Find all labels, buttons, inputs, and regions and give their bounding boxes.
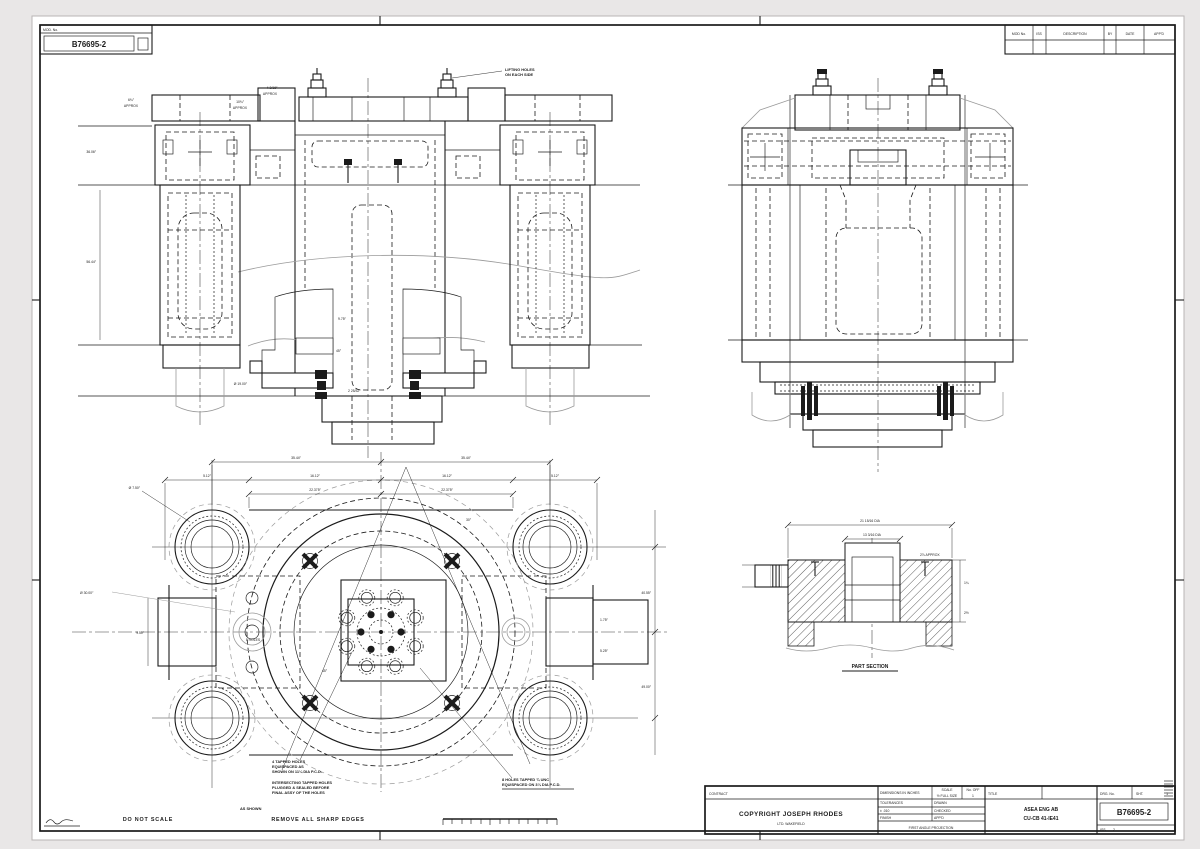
dim-approx2-b: APPROX — [233, 106, 248, 110]
drawn-label: DRAWN — [934, 801, 947, 805]
tol-label: TOLERANCES — [880, 801, 904, 805]
plan-lug-note: 5 HOLES — [246, 638, 261, 642]
plan-dim-main-dia: Ø 30.00″ — [80, 591, 94, 595]
rev-col-mod: MOD No. — [1012, 32, 1026, 36]
dims-note: DIMENSIONS IN INCHES — [880, 791, 920, 795]
section-dim-r1: 1¼ — [964, 581, 969, 585]
dim-left2: 56.44″ — [86, 260, 96, 264]
plan-dim-t2b: 16.12″ — [310, 474, 320, 478]
checked-label: CHECKED — [934, 809, 951, 813]
rev-col-iss: ISS — [1036, 32, 1042, 36]
dim-approx3-b: APPROX — [263, 92, 278, 96]
lifting-note: LIFTING HOLES ON EACH SIDE — [505, 67, 535, 77]
copyright-line: COPYRIGHT JOSEPH RHODES — [739, 811, 843, 818]
lifting-note-line2: ON EACH SIDE — [505, 72, 534, 77]
sheet-value: 1 — [1166, 792, 1168, 796]
plan-dim-v1: 40.55″ — [641, 591, 651, 595]
customer-line1: ASEA ENG AB — [1024, 807, 1059, 813]
dim-approx1-a: 6¾″ — [128, 98, 135, 102]
border-comb-marks — [1164, 781, 1173, 799]
plugged-note-3: FINAL ASSY OF THE HOLES — [272, 790, 325, 795]
drawing-sheet: MOD. No. B76695-2 MOD No. ISS DESCRIPTIO… — [0, 0, 1200, 849]
drg-label: DRG. No. — [1100, 792, 1115, 796]
no-off-value: 1 — [972, 794, 974, 798]
rev-col-date: DATE — [1126, 32, 1136, 36]
plan-dim-left: 9.50″ — [136, 631, 145, 635]
approved-label: APP'D — [934, 816, 944, 820]
do-not-scale-note: DO NOT SCALE — [123, 817, 173, 823]
dim-g3: 2 25/32″ — [348, 389, 361, 393]
tapped-note-3: SHOWN ON 11¼ DIA P.C.D. — [272, 769, 322, 774]
plan-dim-t3a: 22.375″ — [309, 488, 321, 492]
holes8-note-2: EQUISPACED ON 3¼ DIA P.C.D. — [502, 782, 561, 787]
issue-label: ISS. — [1100, 828, 1106, 832]
drawing-canvas: MOD. No. B76695-2 MOD No. ISS DESCRIPTIO… — [0, 0, 1200, 849]
plan-dim-t2d: 5.12″ — [551, 474, 560, 478]
remove-edges-note: REMOVE ALL SHARP EDGES — [271, 817, 364, 823]
sheet-label: SHT. — [1136, 792, 1143, 796]
tol-value: ± .010 — [880, 809, 890, 813]
dim-g1: 9.75″ — [338, 317, 347, 321]
copyright-sub: LTD. WAKEFIELD — [777, 822, 805, 826]
plan-dim-t2c: 16.12″ — [442, 474, 452, 478]
title-label: TITLE — [988, 792, 998, 796]
plan-dim-t3b: 22.375″ — [441, 488, 453, 492]
plan-dim-t1a: 35.44″ — [291, 456, 301, 460]
section-dim-r2: 2½ — [964, 611, 969, 615]
corner-box-number: B76695-2 — [72, 40, 107, 49]
dim-g2: 45° — [336, 349, 342, 353]
plan-dim-rb: 5.25″ — [600, 649, 609, 653]
rev-col-by: BY — [1108, 32, 1113, 36]
plan-dim-lobe-dia: Ø 7.50″ — [129, 486, 141, 490]
no-off-label: No. OFF — [967, 788, 980, 792]
plan-dim-a45: 45° — [322, 669, 328, 673]
plan-dim-t1b: 35.44″ — [461, 456, 471, 460]
dim-g4: Ø 19.00″ — [234, 382, 248, 386]
rev-col-desc: DESCRIPTION — [1063, 32, 1087, 36]
issue-value: 2 — [1113, 828, 1115, 832]
scale-label: SCALE — [941, 788, 953, 792]
section-dim-d2: 13 3/16 DIA — [863, 533, 882, 537]
section-view-label: PART SECTION — [852, 664, 889, 670]
section-dim-d1: 21 15/16 DIA — [860, 519, 881, 523]
customer-line2: CU-CB 41-IE41 — [1023, 816, 1058, 822]
dim-left1: 36.06″ — [86, 150, 96, 154]
plan-dim-a30: 30° — [466, 518, 472, 522]
corner-box-label: MOD. No. — [43, 28, 58, 32]
rev-col-appd: APP'D — [1154, 32, 1164, 36]
dim-approx2-a: 10¾″ — [236, 100, 245, 104]
plan-dim-ra: 1.75″ — [600, 618, 609, 622]
contract-label: CONTRACT — [709, 792, 728, 796]
section-dim-approx: 2⅞ APPROX — [920, 553, 940, 557]
sheet-frame — [32, 16, 1184, 840]
scale-value: ½ FULL SIZE — [937, 794, 958, 798]
drg-number: B76695-2 — [1117, 808, 1152, 817]
plugged-note-4: AS SHOWN — [240, 806, 262, 811]
plan-dim-v2: 49.00″ — [641, 685, 651, 689]
dim-approx1-b: APPROX — [124, 104, 139, 108]
finish-label: FINISH — [880, 816, 892, 820]
projection-note: FIRST ANGLE PROJECTION — [909, 826, 954, 830]
plan-dim-t2a: 5.12″ — [203, 474, 212, 478]
dim-approx3-a: 4 3/16″ — [267, 86, 278, 90]
